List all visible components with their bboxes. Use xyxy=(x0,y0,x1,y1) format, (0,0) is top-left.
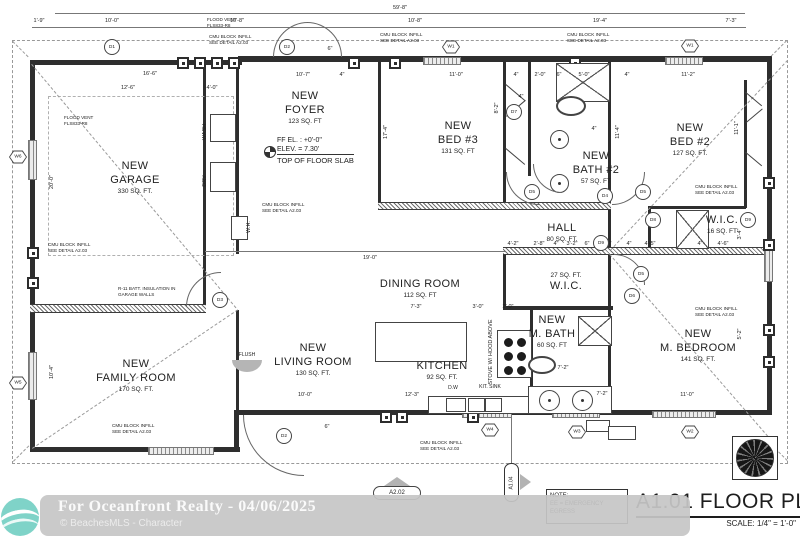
ff-note-line3: TOP OF FLOOR SLAB xyxy=(277,154,354,166)
room-name-line: KITCHEN xyxy=(416,360,467,374)
room-name-line: W.I.C. xyxy=(550,280,582,294)
note-line: FLOOD VENT xyxy=(64,115,93,121)
wall-segment xyxy=(503,247,772,255)
detail-note: CMU BLOCK INFILLSEE DETAIL A2.03 xyxy=(567,32,609,43)
tag-label: D7 xyxy=(511,110,517,115)
reference-line xyxy=(55,13,745,14)
dimension-label: 6" xyxy=(556,72,561,78)
ac-condenser-unit xyxy=(732,436,778,480)
elevation-datum-icon xyxy=(264,146,276,158)
dimension-label: 7'-3" xyxy=(726,18,737,24)
note-line: CMU BLOCK INFILL xyxy=(262,202,304,208)
reference-line xyxy=(205,251,505,252)
note-line: FLS833-R8 xyxy=(64,121,93,127)
room-name-line: NEW xyxy=(274,342,352,356)
stove-burner-icon xyxy=(504,352,513,361)
elevation-marker-label: A1.04 xyxy=(509,476,515,489)
dimension-label: 4'-6" xyxy=(718,241,729,247)
door-tag: D4 xyxy=(597,188,613,204)
ff-note-line1: FF EL. : +0'-0" xyxy=(277,136,354,145)
dimension-label: 16'-6" xyxy=(143,71,157,77)
dimension-label: 10'-0" xyxy=(105,18,119,24)
room-name-line: GARAGE xyxy=(110,174,159,188)
flood-vent-block-icon xyxy=(27,277,39,289)
room-sqft: 92 SQ. FT. xyxy=(416,374,467,382)
note-line: FLOOD VENT xyxy=(207,17,236,23)
dimension-label: 4" xyxy=(626,241,631,247)
dimension-label: 3'-0" xyxy=(473,304,484,310)
room-name-line: M. BEDROOM xyxy=(660,342,736,356)
flood-vent-block-icon xyxy=(228,57,240,69)
dimension-label: 11'-2" xyxy=(681,72,695,78)
fixture-box xyxy=(497,330,532,378)
room-name-line: NEW xyxy=(96,358,176,372)
tag-label: W4 xyxy=(486,428,493,433)
sink-basin-icon xyxy=(550,130,569,149)
dimension-label: 4" xyxy=(339,72,344,78)
tag-label: D3 xyxy=(217,298,223,303)
stove-burner-icon xyxy=(504,366,513,375)
ff-note-line2: ELEV. = 7.30' xyxy=(277,145,354,154)
note-line: CMU BLOCK INFILL xyxy=(209,34,251,40)
dimension-label: 2'-8" xyxy=(534,241,545,247)
finish-floor-elevation-note: FF EL. : +0'-0" ELEV. = 7.30' TOP OF FLO… xyxy=(277,136,354,166)
note-line: FLS833-R8 xyxy=(207,23,236,29)
dimension-label: 2'-0" xyxy=(535,72,546,78)
shower-or-shaft-box xyxy=(676,210,709,249)
note-line: SEE DETAIL A2.03 xyxy=(695,312,737,318)
room-name-line: DINING ROOM xyxy=(380,278,460,292)
window-marker xyxy=(665,57,703,65)
toilet-icon xyxy=(528,356,556,374)
room-label: NEWM. BEDROOM141 SQ. FT. xyxy=(660,328,736,364)
note-line: R-11 BATT. INSULATION IN xyxy=(118,286,175,292)
tag-label: D1 xyxy=(109,45,115,50)
note-line: SEE DETAIL A2.03 xyxy=(380,38,422,44)
door-tag: D6 xyxy=(624,288,640,304)
room-name-line: NEW xyxy=(438,120,478,134)
dimension-label: 4" xyxy=(697,241,702,247)
flood-vent-block-icon xyxy=(763,324,775,336)
room-sqft: 123 SQ. FT xyxy=(285,118,325,126)
note-line: CMU BLOCK INFILL xyxy=(420,440,462,446)
wall-segment xyxy=(503,252,506,310)
room-sqft: 130 SQ. FT. xyxy=(274,370,352,378)
window-marker xyxy=(148,447,214,455)
tag-label: D4 xyxy=(602,194,608,199)
tag-label: D8 xyxy=(650,218,656,223)
window-marker xyxy=(652,411,716,418)
flood-vent-block-icon xyxy=(396,411,408,423)
room-name-line: HALL xyxy=(546,222,577,236)
room-name-line: NEW xyxy=(660,328,736,342)
sink-basin-icon xyxy=(572,390,593,411)
note-line: CMU BLOCK INFILL xyxy=(112,423,154,429)
room-label: NEWGARAGE330 SQ. FT. xyxy=(110,160,159,196)
reference-line xyxy=(511,415,512,465)
room-sqft: 127 SQ. FT. xyxy=(670,150,710,158)
detail-note: CMU BLOCK INFILLSEE DETAIL A2.03 xyxy=(695,184,737,195)
fixture-box xyxy=(586,420,610,432)
flood-vent-block-icon xyxy=(27,247,39,259)
stove-burner-icon xyxy=(504,338,513,347)
fixture-box xyxy=(210,162,236,192)
note-line: SEE DETAIL A2.03 xyxy=(567,38,609,44)
dimension-label: 4" xyxy=(624,72,629,78)
wall-segment xyxy=(378,202,611,210)
flood-vent-block-icon xyxy=(211,57,223,69)
room-sqft: 57 SQ. FT xyxy=(573,178,620,186)
dimension-label: 4" xyxy=(513,72,518,78)
fixture-label: KIT. SINK xyxy=(479,384,501,390)
dimension-label: 10'-8" xyxy=(408,18,422,24)
tag-label: D5 xyxy=(529,190,535,195)
room-label: NEWBED #3131 SQ. FT xyxy=(438,120,478,156)
detail-note: CMU BLOCK INFILLSEE DETAIL A2.03 xyxy=(380,32,422,43)
room-name-line: FOYER xyxy=(285,104,325,118)
detail-note: FLOOD VENTFLS833-R8 xyxy=(64,115,93,126)
room-name-line: BATH #2 xyxy=(573,164,620,178)
flood-vent-block-icon xyxy=(389,57,401,69)
fixture-box xyxy=(468,398,485,412)
door-tag: D9 xyxy=(593,235,609,251)
door-swing-arc xyxy=(243,415,304,476)
tag-label: W1 xyxy=(447,45,454,50)
window-marker xyxy=(28,352,37,400)
note-line: SEE DETAIL A2.03 xyxy=(209,40,251,46)
room-name-line: FAMILY ROOM xyxy=(96,372,176,386)
reference-line xyxy=(32,27,746,28)
tag-label: D9 xyxy=(598,241,604,246)
room-label: NEWBED #2127 SQ. FT. xyxy=(670,122,710,158)
detail-note: CMU BLOCK INFILLSEE DETAIL A2.03 xyxy=(262,202,304,213)
flood-vent-block-icon xyxy=(763,177,775,189)
fixture-label: FLUSH xyxy=(239,352,255,358)
dimension-label: 5'-0" xyxy=(579,72,590,78)
wall-segment xyxy=(528,62,531,176)
dimension-label: 11'-0" xyxy=(680,392,694,398)
room-name-line: BED #3 xyxy=(438,134,478,148)
watermark-line1: For Oceanfront Realty - 04/06/2025 xyxy=(58,498,316,516)
stove-burner-icon xyxy=(517,338,526,347)
dimension-label: 10'-4" xyxy=(49,365,55,379)
note-line: CMU BLOCK INFILL xyxy=(567,32,609,38)
stove-burner-icon xyxy=(517,352,526,361)
sink-basin-icon xyxy=(539,390,560,411)
note-line: CMU BLOCK INFILL xyxy=(380,32,422,38)
tag-label: D9 xyxy=(745,218,751,223)
room-label: NEWFAMILY ROOM170 SQ. FT. xyxy=(96,358,176,394)
dimension-label: 17'-4" xyxy=(383,125,389,139)
dimension-label: 4" xyxy=(553,241,558,247)
tag-label: W6 xyxy=(14,155,21,160)
door-tag: D3 xyxy=(212,292,228,308)
dimension-label: 3'-4" xyxy=(737,229,743,240)
flood-vent-block-icon xyxy=(763,239,775,251)
dimension-label: 7'-2" xyxy=(597,391,608,397)
wall-segment xyxy=(234,410,239,452)
window-marker xyxy=(764,250,773,282)
dimension-label: 4'-2" xyxy=(508,241,519,247)
dimension-label: 5'-2" xyxy=(737,329,743,340)
fixture-box xyxy=(375,322,467,362)
fixture-box xyxy=(446,398,466,412)
room-name-line: NEW xyxy=(573,150,620,164)
flood-vent-block-icon xyxy=(380,411,392,423)
detail-note: CMU BLOCK INFILLSEE DETAIL A2.03 xyxy=(695,306,737,317)
wall-segment xyxy=(30,304,206,313)
shower-or-shaft-box xyxy=(578,316,612,346)
door-tag: D5 xyxy=(524,184,540,200)
room-name-line: 27 SQ. FT. xyxy=(550,272,582,280)
brand-wave-logo-icon xyxy=(1,498,39,536)
dimension-label: 12'-6" xyxy=(121,85,135,91)
door-tag: D8 xyxy=(645,212,661,228)
dimension-label: 4" xyxy=(518,94,523,100)
detail-note: R-11 BATT. INSULATION INGARAGE WALLS xyxy=(118,286,175,297)
dimension-label: 12'-3" xyxy=(405,392,419,398)
floor-plan-sheet: FF EL. : +0'-0" ELEV. = 7.30' TOP OF FLO… xyxy=(0,0,800,536)
note-line: GARAGE WALLS xyxy=(118,292,175,298)
wall-segment xyxy=(648,206,746,209)
toilet-icon xyxy=(556,96,586,116)
door-tag: D7 xyxy=(506,104,522,120)
tag-label: D5 xyxy=(638,272,644,277)
vertical-label: WASH xyxy=(202,124,208,140)
detail-note: CMU BLOCK INFILLSEE DETAIL A2.03 xyxy=(48,242,90,253)
note-line: SEE DETAIL A2.03 xyxy=(420,446,462,452)
room-label: 27 SQ. FT.W.I.C. xyxy=(550,272,582,294)
dimension-label: 11'-1" xyxy=(734,121,740,135)
section-arrow-up-icon xyxy=(384,477,410,486)
flood-vent-block-icon xyxy=(763,356,775,368)
tag-label: W3 xyxy=(573,430,580,435)
flood-vent-block-icon xyxy=(348,57,360,69)
tag-label: D5 xyxy=(640,190,646,195)
note-line: CMU BLOCK INFILL xyxy=(695,184,737,190)
dimension-label: 19'-4" xyxy=(593,18,607,24)
window-marker xyxy=(28,140,37,180)
room-name-line: W.I.C. xyxy=(706,214,738,228)
dimension-label: 59'-8" xyxy=(393,5,407,11)
room-name-line: NEW xyxy=(110,160,159,174)
door-tag: D2 xyxy=(279,39,295,55)
fixture-box xyxy=(485,398,502,412)
dimension-label: 2'-0" xyxy=(503,304,514,310)
dimension-label: 10'-0" xyxy=(298,392,312,398)
room-label: W.I.C.16 SQ. FT xyxy=(706,214,738,236)
wall-segment xyxy=(503,306,613,310)
door-tag: D5 xyxy=(633,266,649,282)
door-tag: D2 xyxy=(276,428,292,444)
elevation-arrow-right-icon xyxy=(520,474,531,490)
door-tag: D1 xyxy=(104,39,120,55)
dimension-label: 4" xyxy=(591,126,596,132)
dimension-label: 20'-0" xyxy=(49,175,55,189)
room-name-line: NEW xyxy=(670,122,710,136)
flood-vent-block-icon xyxy=(194,57,206,69)
dimension-label: 4'-0" xyxy=(207,85,218,91)
tag-label: D2 xyxy=(281,434,287,439)
tag-label: W1 xyxy=(686,44,693,49)
room-sqft: 131 SQ. FT xyxy=(438,148,478,156)
room-label: NEWM. BATH60 SQ. FT xyxy=(529,314,576,350)
detail-note: CMU BLOCK INFILLSEE DETAIL A2.03 xyxy=(420,440,462,451)
room-name-line: LIVING ROOM xyxy=(274,356,352,370)
room-label: NEWLIVING ROOM130 SQ. FT. xyxy=(274,342,352,378)
detail-note: CMU BLOCK INFILLSEE DETAIL A2.03 xyxy=(112,423,154,434)
dimension-label: 8'-2" xyxy=(494,103,500,114)
room-name-line: M. BATH xyxy=(529,328,576,342)
dimension-label: 1'-9" xyxy=(34,18,45,24)
detail-note: CMU BLOCK INFILLSEE DETAIL A2.03 xyxy=(209,34,251,45)
room-label: DINING ROOM112 SQ. FT xyxy=(380,278,460,300)
dimension-label: 6" xyxy=(324,424,329,430)
room-label: NEWBATH #257 SQ. FT xyxy=(573,150,620,186)
room-sqft: 170 SQ. FT. xyxy=(96,386,176,394)
dimension-label: 11'-4" xyxy=(615,125,621,139)
tag-label: W5 xyxy=(14,381,21,386)
tag-label: D2 xyxy=(284,45,290,50)
detail-note: FLOOD VENTFLS833-R8 xyxy=(207,17,236,28)
dimension-label: 10'-7" xyxy=(296,72,310,78)
room-name-line: NEW xyxy=(529,314,576,328)
door-tag: D9 xyxy=(740,212,756,228)
room-label: NEWFOYER123 SQ. FT xyxy=(285,90,325,126)
vertical-label: W.H. xyxy=(246,221,252,233)
flood-vent-block-icon xyxy=(177,57,189,69)
room-sqft: 141 SQ. FT. xyxy=(660,356,736,364)
dimension-label: 11'-0" xyxy=(449,72,463,78)
dimension-label: 6" xyxy=(584,241,589,247)
dimension-label: 3'-2" xyxy=(567,241,578,247)
dimension-label: 6" xyxy=(327,46,332,52)
room-label: KITCHEN92 SQ. FT. xyxy=(416,360,467,382)
note-line: CMU BLOCK INFILL xyxy=(48,242,90,248)
room-sqft: 112 SQ. FT xyxy=(380,292,460,300)
fan-icon xyxy=(736,439,774,477)
fixture-box xyxy=(210,114,236,142)
note-line: CMU BLOCK INFILL xyxy=(695,306,737,312)
tag-label: W2 xyxy=(686,430,693,435)
room-name-line: BED #2 xyxy=(670,136,710,150)
vertical-label: DRY xyxy=(202,175,208,187)
vertical-label: STOVE W/ HOOD ABOVE xyxy=(488,320,494,385)
note-line: SEE DETAIL A2.03 xyxy=(112,429,154,435)
dimension-label: 7'-2" xyxy=(558,365,569,371)
dimension-label: 19'-0" xyxy=(363,255,377,261)
fixture-label: D.W xyxy=(448,385,458,391)
dimension-label: 7'-3" xyxy=(411,304,422,310)
room-sqft: 16 SQ. FT xyxy=(706,228,738,236)
dimension-label: 4'-5" xyxy=(645,241,656,247)
watermark-line2: © BeachesMLS - Character xyxy=(60,518,182,529)
room-sqft: 330 SQ. FT. xyxy=(110,188,159,196)
door-tag: D5 xyxy=(635,184,651,200)
fixture-box xyxy=(608,426,636,440)
wall-segment xyxy=(378,62,381,208)
note-line: SEE DETAIL A2.03 xyxy=(262,208,304,214)
note-line: SEE DETAIL A2.03 xyxy=(695,190,737,196)
window-marker xyxy=(423,57,461,65)
room-sqft: 60 SQ. FT xyxy=(529,342,576,350)
tag-label: D6 xyxy=(629,294,635,299)
note-line: SEE DETAIL A2.03 xyxy=(48,248,90,254)
wall-segment xyxy=(744,80,747,208)
watermark-bar: For Oceanfront Realty - 04/06/2025 © Bea… xyxy=(40,495,690,536)
stove-burner-icon xyxy=(517,366,526,375)
room-name-line: NEW xyxy=(285,90,325,104)
